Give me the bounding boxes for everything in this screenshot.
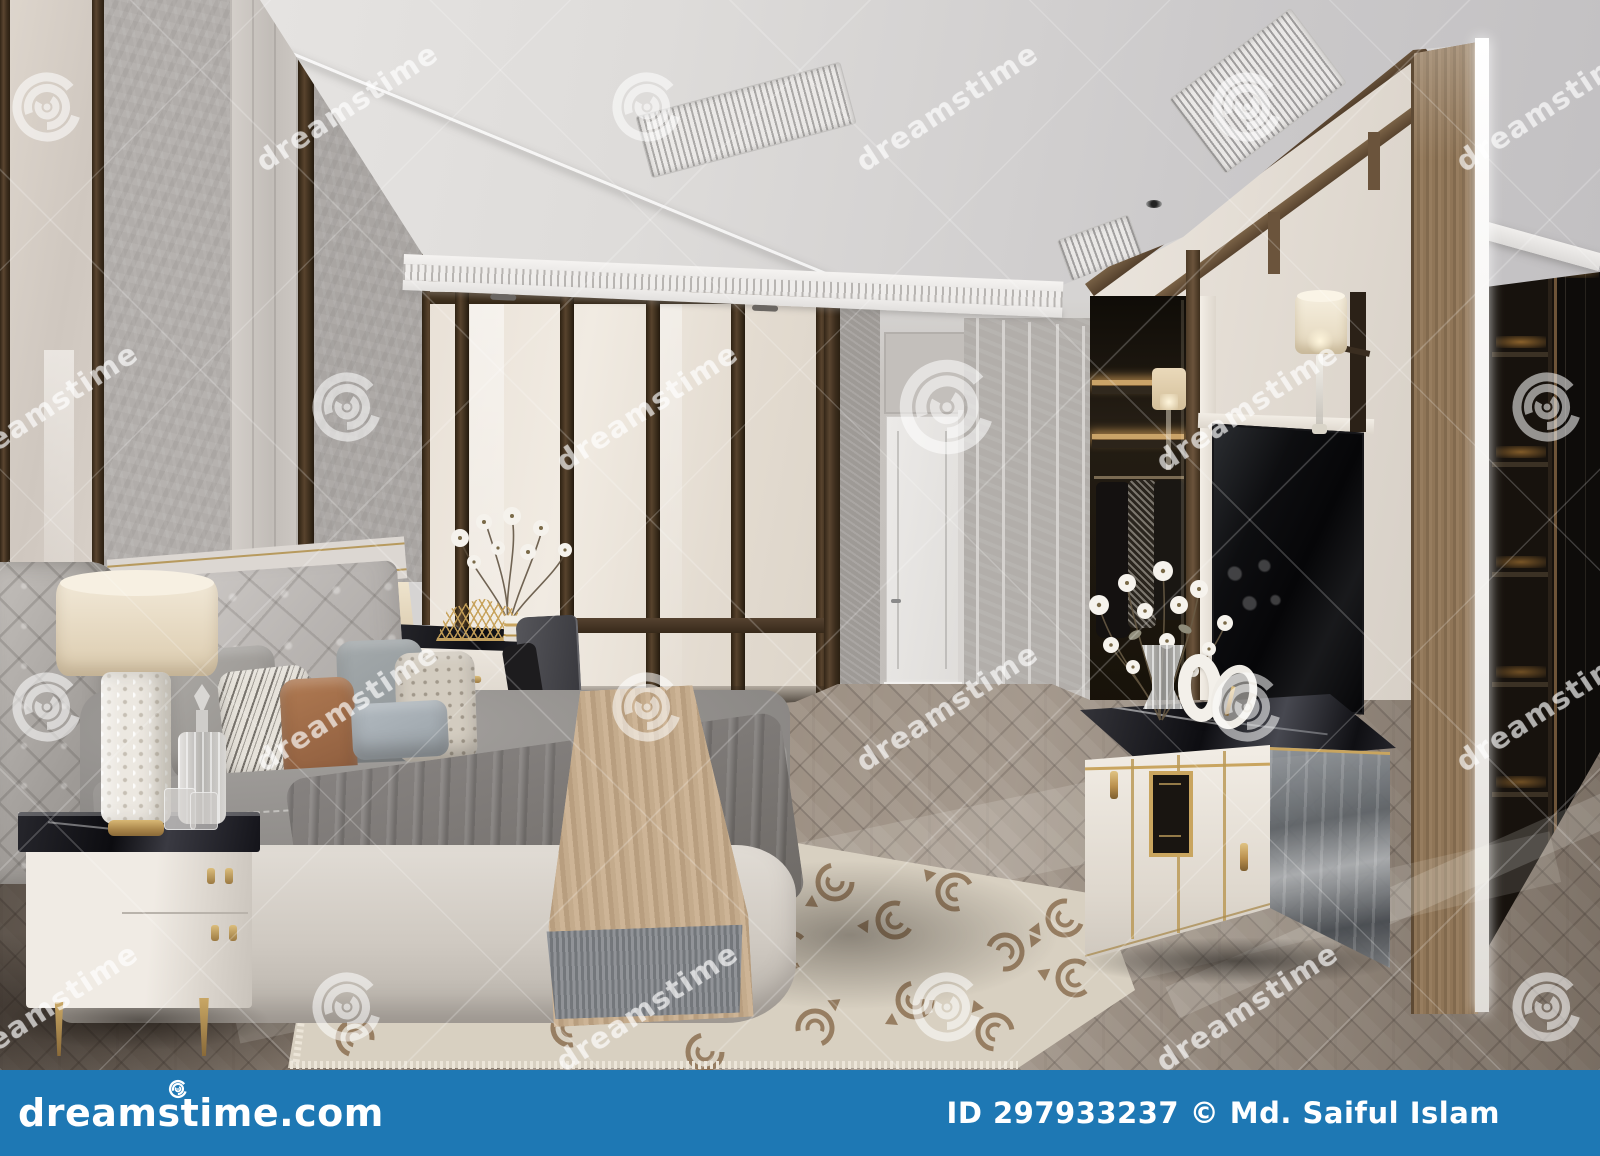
image-credit: ID 297933237 © Md. Saiful Islam [947, 1096, 1500, 1130]
watermark-text: dreamstime [1449, 635, 1600, 778]
watermark-text: dreamstime [549, 335, 744, 478]
dreamstime-spiral-icon [309, 369, 385, 445]
dreamstime-spiral-icon [9, 69, 85, 145]
dreamstime-spiral-icon [909, 969, 985, 1045]
footer-bar: dreamstime.com ID 297933237 © Md. Saiful… [0, 1070, 1600, 1156]
watermark-text: dreamstime [1149, 335, 1344, 478]
dreamstime-spiral-icon [1209, 669, 1285, 745]
dreamstime-spiral-icon [309, 969, 385, 1045]
dreamstime-logo-text: dreamstime.com [18, 1091, 384, 1135]
dreamstime-spiral-icon [609, 69, 685, 145]
dreamstime-spiral-icon [1509, 369, 1585, 445]
dreamstime-spiral-icon [895, 355, 999, 459]
watermark-layer: dreamstime dreamstime dreamstime dreamst… [0, 0, 1600, 1070]
watermark-text: dreamstime [249, 635, 444, 778]
dreamstime-logo-spiral-icon [168, 1079, 188, 1099]
dreamstime-spiral-icon [1209, 69, 1285, 145]
watermark-text: dreamstime [549, 935, 744, 1070]
dreamstime-spiral-icon [1509, 969, 1585, 1045]
watermark-text: dreamstime [849, 635, 1044, 778]
dreamstime-spiral-icon [609, 669, 685, 745]
stock-photo-preview: dreamstime dreamstime dreamstime dreamst… [0, 0, 1600, 1156]
dreamstime-spiral-icon [9, 669, 85, 745]
watermark-text: dreamstime [1149, 935, 1344, 1070]
watermark-text: dreamstime [0, 335, 145, 478]
dreamstime-logo: dreamstime.com [18, 1091, 384, 1135]
watermark-text: dreamstime [1449, 35, 1600, 178]
watermark-text: dreamstime [849, 35, 1044, 178]
watermark-text: dreamstime [0, 935, 145, 1070]
watermark-text: dreamstime [249, 35, 444, 178]
